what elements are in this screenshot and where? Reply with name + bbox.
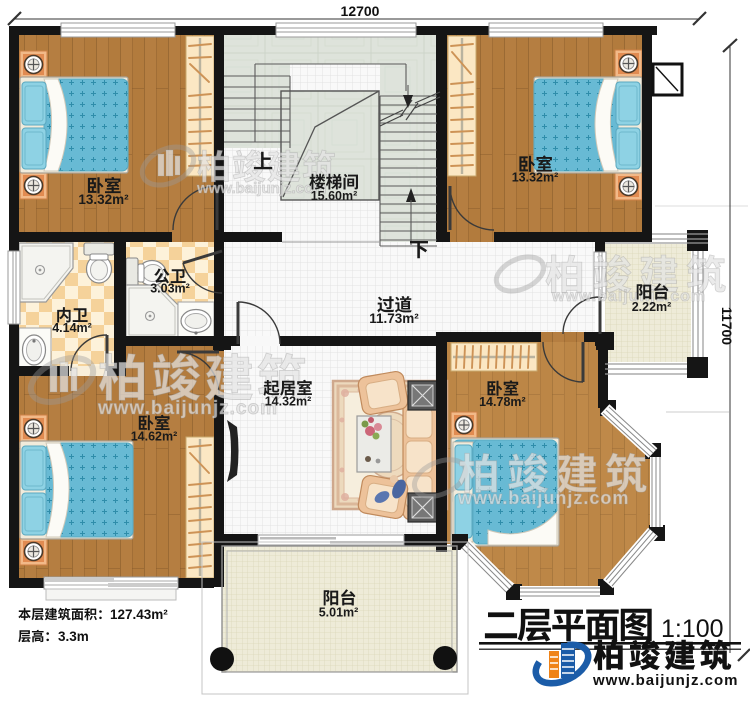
svg-text:11.73m²: 11.73m² xyxy=(369,311,419,326)
svg-text:14.32m²: 14.32m² xyxy=(265,395,312,409)
svg-text:www.baijunjz.com: www.baijunjz.com xyxy=(592,672,738,689)
svg-text:www.baijunjz.com: www.baijunjz.com xyxy=(196,180,326,197)
svg-text:4.14m²: 4.14m² xyxy=(52,321,92,335)
svg-text:12700: 12700 xyxy=(341,3,380,19)
svg-text:127.43m²: 127.43m² xyxy=(110,607,168,622)
svg-text:2.22m²: 2.22m² xyxy=(632,300,672,314)
svg-text:3.3m: 3.3m xyxy=(58,629,89,644)
svg-text:5.01m²: 5.01m² xyxy=(319,606,359,620)
svg-text:14.62m²: 14.62m² xyxy=(131,430,178,444)
svg-text:13.32m²: 13.32m² xyxy=(78,192,129,207)
svg-text:15.60m²: 15.60m² xyxy=(311,189,358,203)
svg-text:3.03m²: 3.03m² xyxy=(150,282,190,296)
svg-text:13.32m²: 13.32m² xyxy=(512,171,559,185)
svg-text:1:100: 1:100 xyxy=(661,615,724,643)
svg-text:www.baijunjz.com: www.baijunjz.com xyxy=(97,398,278,419)
svg-text:14.78m²: 14.78m² xyxy=(479,395,526,409)
svg-text:www.baijunjz.com: www.baijunjz.com xyxy=(551,288,706,305)
svg-text:11700: 11700 xyxy=(719,307,735,345)
svg-text:www.baijunjz.com: www.baijunjz.com xyxy=(457,488,629,508)
